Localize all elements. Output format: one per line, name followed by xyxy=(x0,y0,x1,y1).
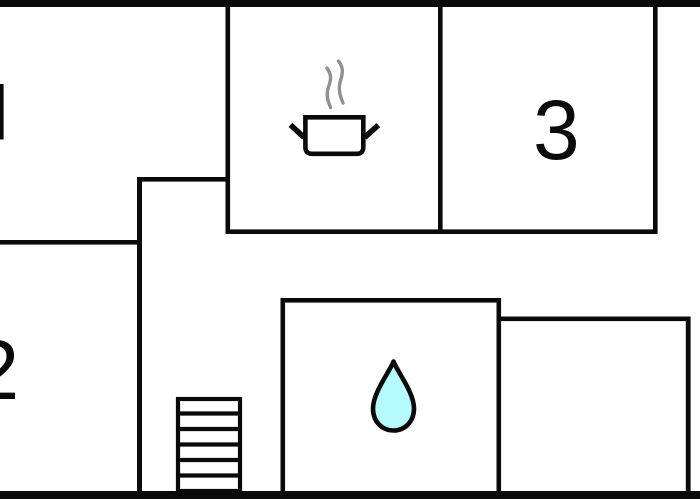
svg-text:2: 2 xyxy=(0,323,19,417)
svg-text:3: 3 xyxy=(533,83,580,177)
